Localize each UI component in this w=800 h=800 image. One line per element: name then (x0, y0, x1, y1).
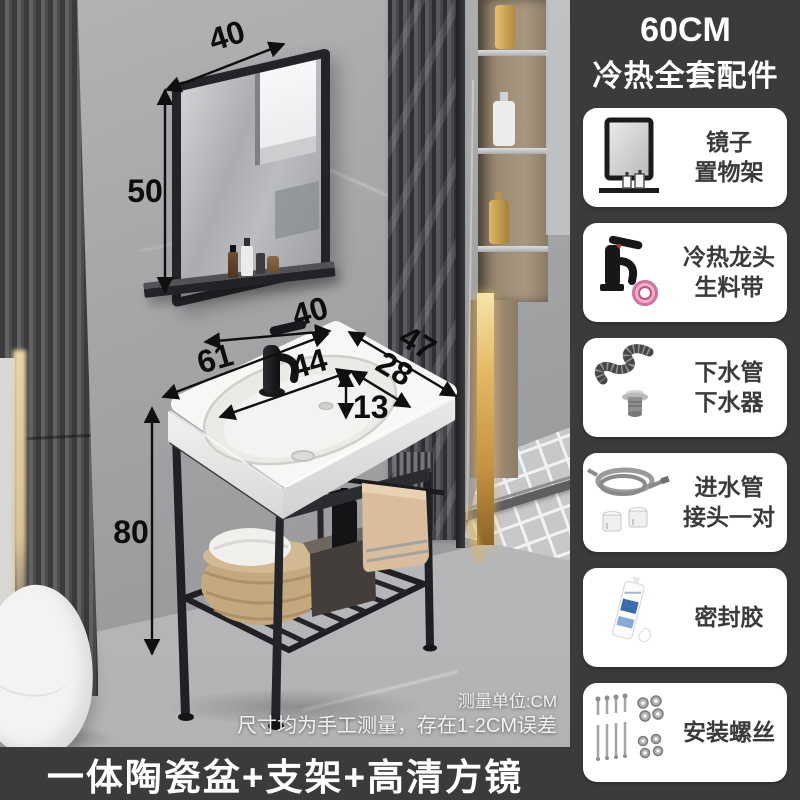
drain-pipe-icon (583, 344, 677, 430)
niche-shelf (478, 148, 548, 154)
black-faucet (259, 319, 307, 397)
mirror-shelf-icon (583, 114, 677, 200)
shelf-bottle (267, 256, 279, 273)
shelf-bottle (228, 252, 238, 278)
inlet-hose-icon (583, 459, 677, 545)
fluted-shower-partition (388, 0, 460, 540)
accessory-card-mirror: 镜子 置物架 (583, 108, 787, 207)
screws-icon (583, 689, 677, 775)
dim-mirror-height: 50 (127, 173, 163, 209)
dim-mirror-width: 40 (205, 13, 250, 58)
gold-bottle (495, 5, 515, 49)
bottom-banner: 一体陶瓷盆+支架+高清方镜 (0, 747, 570, 800)
dim-shelf-width: 40 (288, 289, 332, 333)
niche-shelf (478, 50, 548, 56)
panel-title-desc: 冷热全套配件 (583, 51, 788, 95)
overflow-hole (319, 403, 333, 410)
folded-towel (209, 528, 291, 566)
shelf-bottle (241, 246, 253, 276)
mirror-reflection-patch (275, 181, 319, 239)
accessory-card-faucet: 冷热龙头 生料带 (583, 223, 787, 322)
black-pump-bottle (332, 498, 357, 552)
accessory-label: 下水管 下水器 (677, 357, 787, 418)
product-image: 40 50 40 61 44 13 28 47 80 测量单位:CM 尺寸均为手… (0, 0, 800, 800)
panel-title-size: 60CM (583, 10, 788, 51)
wall-highlight (546, 0, 570, 235)
drain-hole (292, 451, 314, 461)
accessory-label: 进水管 接头一对 (677, 472, 787, 533)
gold-bottle (489, 200, 509, 244)
accessory-label: 密封胶 (677, 602, 787, 632)
dim-bowl-width: 44 (287, 341, 331, 385)
accessory-card-inlet: 进水管 接头一对 (583, 453, 787, 552)
dim-arrow-basin-width (163, 334, 328, 397)
faucet-tape-icon (583, 229, 677, 315)
banner-title: 一体陶瓷盆+支架+高清方镜 (47, 747, 523, 800)
accessory-card-sealant: 密封胶 (583, 568, 787, 667)
dim-arrow-bowl-width (220, 371, 352, 417)
accessory-card-drain: 下水管 下水器 (583, 338, 787, 437)
shelf-bottle (256, 253, 265, 274)
mirror-window-reflection (255, 60, 316, 166)
dim-arrow-shelf-width (205, 331, 330, 342)
sealant-icon (583, 574, 677, 660)
dim-stand-height: 80 (113, 514, 149, 550)
tolerance-note: 尺寸均为手工测量，存在1-2CM误差 (237, 709, 557, 738)
gold-light-strip (477, 293, 494, 545)
basin-bowl (193, 338, 407, 482)
dim-basin-width: 61 (193, 336, 237, 380)
accessory-label: 安装螺丝 (677, 717, 787, 747)
accessory-card-screws: 安装螺丝 (583, 683, 787, 782)
accessory-label: 镜子 置物架 (677, 127, 787, 188)
wall-niche-shelves (478, 0, 548, 302)
bathroom-photo: 40 50 40 61 44 13 28 47 80 测量单位:CM 尺寸均为手… (0, 0, 570, 747)
partition-frame (456, 0, 465, 548)
dim-bowl-height: 13 (353, 389, 389, 425)
accessory-label: 冷热龙头 生料带 (677, 242, 787, 303)
white-bottle (493, 101, 515, 146)
niche-shelf (478, 246, 548, 252)
accessories-panel: 60CM 冷热全套配件 镜子 置物架 (570, 0, 800, 800)
